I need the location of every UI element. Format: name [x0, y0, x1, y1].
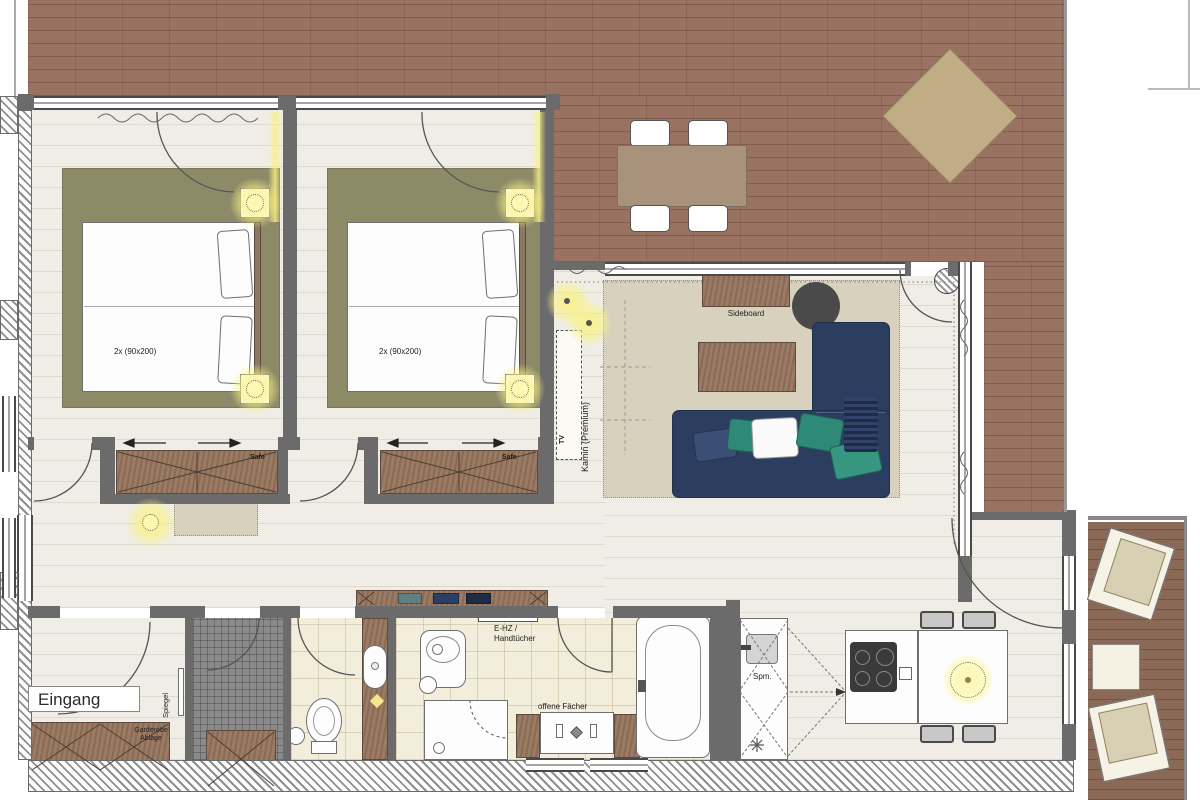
wardrobe-label-line1: Garderobe	[126, 727, 176, 735]
bedroom2-safe-label: Safe	[502, 454, 517, 462]
plan-linework	[0, 0, 1200, 800]
bedroom1-safe-label: Safe	[250, 454, 265, 462]
mirror-label: Spiegel	[161, 668, 170, 718]
tv-label: TV	[559, 418, 567, 444]
floor-plan: Eingang Spiegel Garderobe Ablage 2x (90x…	[0, 0, 1200, 800]
towel-heater-line2: Handtücher	[494, 634, 535, 644]
bedroom1-bed-label: 2x (90x200)	[114, 347, 156, 357]
curtain-squiggles	[98, 114, 968, 494]
kitchen-cabinet-dashes	[740, 620, 846, 758]
entrance-label: Eingang	[38, 690, 100, 709]
entrance-label-box: Eingang	[28, 686, 140, 712]
wardrobe-label-line2: Ablage	[126, 735, 176, 743]
towel-heater-line1: E-HZ /	[494, 624, 535, 634]
wardrobe-x-pattern	[32, 452, 546, 786]
open-shelves-label: offene Fächer	[538, 702, 587, 712]
door-swing-arcs	[34, 112, 1062, 714]
roof-overhang-dotted-line	[557, 282, 954, 546]
wardrobe-label: Garderobe Ablage	[126, 727, 176, 744]
sliding-door-arrows	[124, 439, 504, 447]
ceiling-fan-symbol	[750, 738, 764, 752]
towel-heater-label: E-HZ / Handtücher	[494, 624, 535, 643]
construction-dashes	[600, 300, 650, 455]
bedroom2-bed-label: 2x (90x200)	[379, 347, 421, 357]
shower-door-arc	[470, 700, 508, 738]
sideboard-label: Sideboard	[700, 309, 792, 319]
dishwasher-label: Spm.	[753, 672, 772, 682]
cabinet-arrow	[836, 688, 846, 696]
fireplace-label: Kamin (Premium)	[580, 348, 591, 472]
